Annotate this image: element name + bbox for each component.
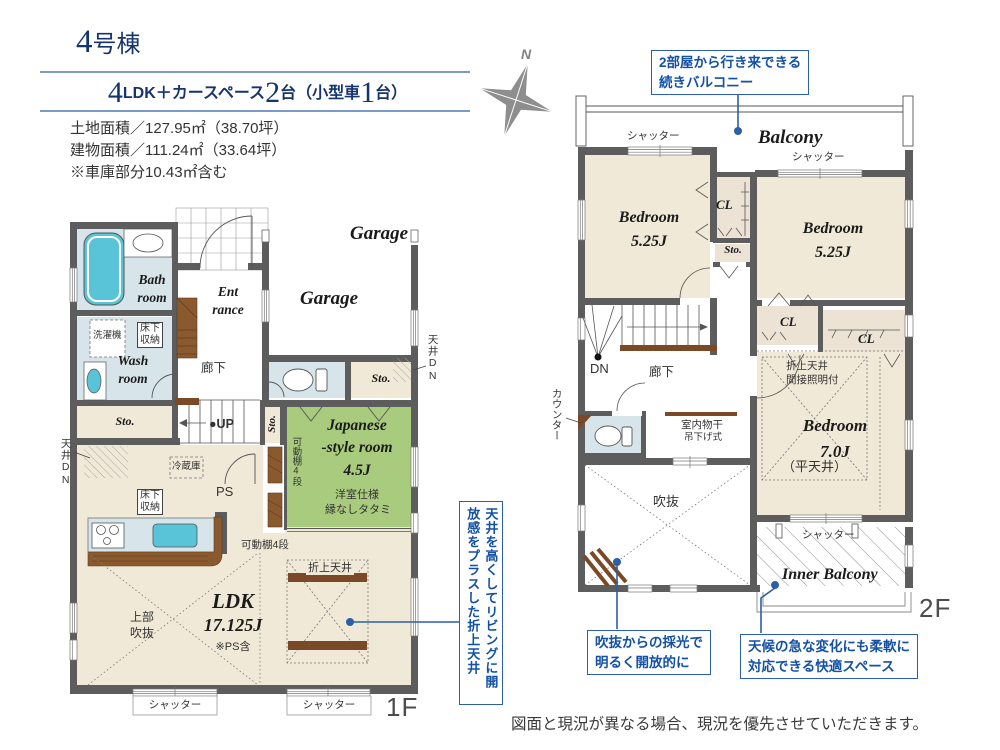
stairs-dn-label: DN: [590, 361, 609, 378]
shutter-1f-left: シャッター: [133, 699, 217, 713]
spec-num-cars: 2: [265, 76, 280, 109]
movable-shelf-vertical: 可動棚4段: [289, 437, 301, 486]
folded-ceiling-2f-note: 折上天井 間接照明付: [786, 360, 839, 387]
stairs-up-label: ●UP: [209, 416, 234, 432]
room-washroom: Wash room: [110, 352, 156, 387]
movable-shelf-horizontal: 可動棚4段: [241, 539, 289, 553]
storage-right: Sto.: [356, 371, 406, 387]
room-bedroom-b: Bedroom 5.25J: [788, 217, 878, 265]
title-number: 4: [76, 24, 93, 60]
shutter-inner-balcony: シャッター: [802, 529, 855, 543]
fridge-label: 冷蔵庫: [172, 461, 201, 473]
upper-void-label: 上部 吹抜: [124, 610, 160, 641]
closet-3: CL: [858, 331, 875, 348]
indoor-drying-label: 室内物干: [681, 419, 723, 433]
counter-label: カウンター: [549, 388, 563, 441]
callout-balcony: 2部屋から行き来できる 続きバルコニー: [651, 50, 809, 95]
shutter-1f-right: シャッター: [287, 699, 371, 713]
room-bedroom-a: Bedroom 5.25J: [604, 206, 694, 254]
hallway-1f: 廊下: [201, 360, 226, 376]
flat-ceiling-label: （平天井）: [782, 459, 847, 476]
area-info: 土地面積／127.95㎡（38.70坪） 建物面積／111.24㎡（33.64坪…: [70, 118, 288, 183]
spec-num-ldk: 4: [108, 76, 123, 109]
folded-ceiling-1f: 折上天井: [306, 561, 354, 575]
room-balcony: Balcony: [758, 126, 822, 151]
drying-type-label: 吊下げ式: [684, 432, 722, 444]
building-area: 建物面積／111.24㎡（33.64坪）: [70, 140, 288, 162]
washing-machine-label: 洗濯機: [93, 330, 122, 342]
room-japanese: Japanese -style room 4.5J: [315, 415, 399, 482]
spec-text-2: 台（小型車: [280, 85, 360, 102]
ceiling-dn-left: 天井DN: [58, 438, 72, 487]
room-ldk: LDK: [198, 588, 268, 615]
storage-small: Sto.: [265, 415, 279, 432]
floor2-plan: [566, 96, 913, 612]
north-label: N: [521, 46, 531, 62]
shutter-2f-right: シャッター: [792, 151, 845, 165]
spec-line: 4LDK＋カースペース2台（小型車1台）: [60, 76, 455, 110]
closet-1: CL: [716, 197, 733, 214]
room-entrance: Ent rance: [205, 283, 251, 318]
underfloor-storage-wash: 床下 収納: [137, 322, 163, 348]
callout-void: 吹抜からの採光で 明るく開放的に: [587, 630, 711, 675]
garage-outside-label: Garage: [350, 222, 408, 247]
void-label: 吹抜: [653, 494, 679, 511]
room-inner-balcony: Inner Balcony: [782, 565, 878, 586]
japanese-note-1: 洋室仕様: [325, 488, 389, 502]
spec-num-small-car: 1: [360, 76, 375, 109]
floor2-label: 2F: [919, 593, 951, 624]
floor1-label: 1F: [386, 692, 418, 723]
garage-note: ※車庫部分10.43㎡含む: [70, 162, 288, 184]
ldk-note: ※PS含: [206, 640, 260, 654]
ps-label: PS: [216, 484, 233, 501]
ceiling-dn-right: 天井DN: [425, 334, 439, 383]
room-bathroom: Bath room: [130, 271, 174, 306]
spec-text-3: 台）: [375, 85, 407, 102]
storage-2f: Sto.: [715, 243, 751, 257]
shutter-2f-left: シャッター: [627, 130, 680, 144]
spec-text-1: LDK＋カースペース: [123, 85, 265, 102]
title-suffix: 号棟: [93, 32, 141, 58]
room-garage: Garage: [300, 287, 358, 312]
callout-inner-balcony: 天候の急な変化にも柔軟に 対応できる快適スペース: [740, 634, 918, 679]
land-area: 土地面積／127.95㎡（38.70坪）: [70, 118, 288, 140]
ldk-size: 17.125J: [192, 614, 274, 637]
page-title: 4号棟: [76, 24, 141, 61]
disclaimer-text: 図面と現況が異なる場合、現況を優先させていただきます。: [511, 712, 928, 734]
compass-icon: [480, 64, 552, 136]
room-bedroom-c: Bedroom 7.0J: [790, 413, 880, 464]
hallway-2f: 廊下: [649, 364, 674, 380]
callout-ceiling: 天井を高くしてリビングに開放感をプラスした折上天井: [459, 501, 503, 705]
closet-2: CL: [780, 314, 797, 331]
floorplan-page: 4号棟 4LDK＋カースペース2台（小型車1台） 土地面積／127.95㎡（38…: [0, 0, 1000, 750]
japanese-note-2: 縁なしタタミ: [316, 503, 400, 517]
underfloor-storage-ldk: 床下 収納: [137, 489, 163, 515]
storage-left: Sto.: [98, 414, 152, 430]
